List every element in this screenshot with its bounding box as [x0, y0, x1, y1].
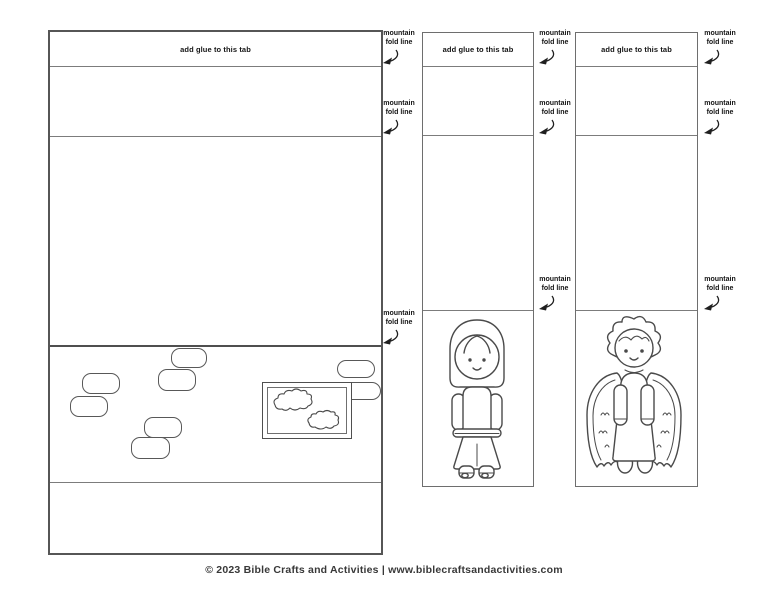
- fold-arrow-icon: [702, 295, 722, 311]
- mountain-fold-label: mountain fold line: [699, 30, 741, 65]
- fold-arrow-icon: [702, 49, 722, 65]
- mountain-fold-label: mountain fold line: [534, 30, 576, 65]
- mountain-fold-label: mountain fold line: [378, 100, 420, 135]
- fold-line: [423, 310, 533, 311]
- stone: [82, 373, 120, 394]
- glue-tab-label: add glue to this tab: [601, 45, 672, 54]
- fold-arrow-icon: [537, 119, 557, 135]
- mountain-fold-label: mountain fold line: [699, 100, 741, 135]
- fold-line: [50, 66, 381, 67]
- fold-arrow-icon: [537, 49, 557, 65]
- fold-line: [423, 135, 533, 136]
- glue-tab-strip: add glue to this tab: [423, 33, 533, 66]
- mountain-fold-label: mountain fold line: [378, 310, 420, 345]
- fold-arrow-icon: [381, 49, 401, 65]
- craft-template-page: add glue to this tab: [0, 0, 768, 593]
- stone: [70, 396, 108, 417]
- stone: [171, 348, 207, 368]
- mary-figure: [441, 317, 513, 481]
- fold-arrow-icon: [381, 329, 401, 345]
- mountain-fold-label: mountain fold line: [699, 276, 741, 311]
- window-frame: [262, 382, 352, 439]
- stone: [144, 417, 182, 438]
- glue-tab-strip: add glue to this tab: [576, 33, 697, 66]
- fold-line: [423, 66, 533, 67]
- stone: [158, 369, 196, 391]
- fold-arrow-icon: [537, 295, 557, 311]
- panel-angel: add glue to this tab: [575, 32, 698, 487]
- cloud-icon: [265, 385, 351, 438]
- stone: [131, 437, 170, 459]
- fold-line: [50, 136, 381, 137]
- angel-figure: [581, 315, 687, 477]
- mountain-fold-label: mountain fold line: [534, 276, 576, 311]
- copyright-footer: © 2023 Bible Crafts and Activities | www…: [0, 564, 768, 576]
- stone: [337, 360, 375, 378]
- glue-tab-strip: add glue to this tab: [50, 32, 381, 66]
- fold-line: [576, 135, 697, 136]
- fold-line: [576, 66, 697, 67]
- mountain-fold-label: mountain fold line: [378, 30, 420, 65]
- fold-arrow-icon: [702, 119, 722, 135]
- glue-tab-label: add glue to this tab: [180, 45, 251, 54]
- fold-arrow-icon: [381, 119, 401, 135]
- glue-tab-label: add glue to this tab: [443, 45, 514, 54]
- fold-line: [576, 310, 697, 311]
- panel-stone-wall: add glue to this tab: [48, 30, 383, 555]
- mountain-fold-label: mountain fold line: [534, 100, 576, 135]
- fold-line: [50, 482, 381, 483]
- panel-mary: add glue to this tab: [422, 32, 534, 487]
- stone-wall-scene: [50, 345, 381, 482]
